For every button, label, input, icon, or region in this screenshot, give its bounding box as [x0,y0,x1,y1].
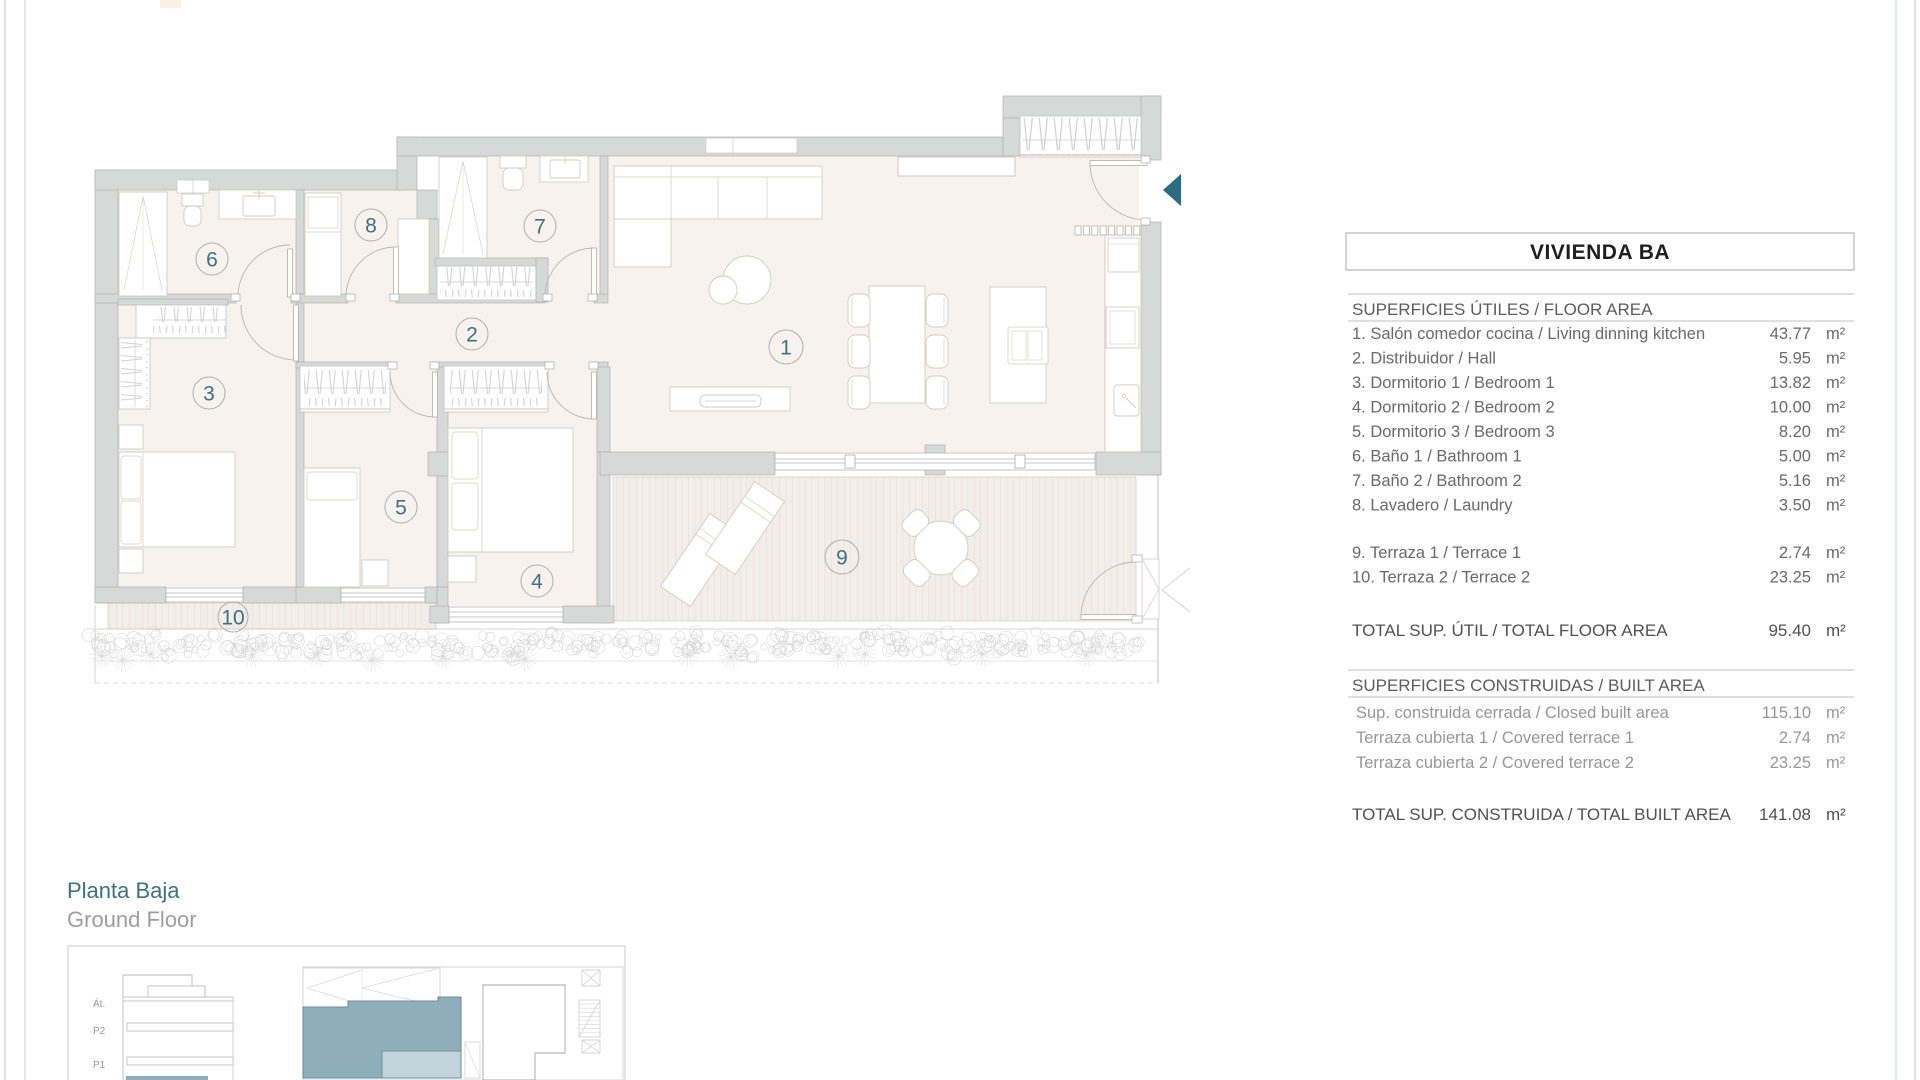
svg-text:P1: P1 [93,1060,106,1071]
svg-text:Terraza cubierta 2 / Covered t: Terraza cubierta 2 / Covered terrace 2 [1356,754,1634,772]
svg-text:m²: m² [1826,754,1846,772]
svg-text:13.82: 13.82 [1770,374,1811,392]
svg-text:m²: m² [1826,399,1846,417]
svg-text:4: 4 [531,571,543,594]
svg-text:Terraza cubierta 1 / Covered t: Terraza cubierta 1 / Covered terrace 1 [1356,729,1634,747]
svg-text:TOTAL SUP. CONSTRUIDA / TOTAL: TOTAL SUP. CONSTRUIDA / TOTAL BUILT AREA [1352,805,1731,824]
svg-text:115.10: 115.10 [1762,704,1811,722]
svg-text:m²: m² [1826,497,1846,515]
svg-text:m²: m² [1826,374,1846,392]
svg-text:10.00: 10.00 [1770,399,1811,417]
svg-text:8. Lavadero / Laundry: 8. Lavadero / Laundry [1352,497,1513,515]
svg-text:m²: m² [1826,472,1846,490]
svg-text:Sup. construida cerrada / Clos: Sup. construida cerrada / Closed built a… [1356,704,1670,722]
svg-text:8: 8 [365,215,377,238]
svg-text:7: 7 [534,216,546,239]
svg-text:m²: m² [1826,621,1846,640]
svg-text:m²: m² [1826,448,1846,466]
svg-text:1: 1 [780,337,792,360]
svg-text:9: 9 [836,547,848,570]
svg-text:m²: m² [1826,704,1846,722]
svg-text:m²: m² [1826,805,1846,824]
svg-text:6. Baño 1 / Bathroom 1: 6. Baño 1 / Bathroom 1 [1352,448,1522,466]
svg-text:23.25: 23.25 [1770,569,1811,587]
svg-text:2.74: 2.74 [1779,544,1811,562]
svg-text:5.16: 5.16 [1779,472,1811,490]
svg-text:5: 5 [395,497,407,520]
svg-text:3: 3 [203,383,215,406]
svg-text:7. Baño 2 / Bathroom 2: 7. Baño 2 / Bathroom 2 [1352,472,1522,490]
svg-text:m²: m² [1826,350,1846,368]
svg-text:m²: m² [1826,325,1846,343]
svg-text:1. Salón comedor cocina / Livi: 1. Salón comedor cocina / Living dinning… [1352,325,1705,343]
svg-text:23.25: 23.25 [1770,754,1811,772]
svg-text:8.20: 8.20 [1779,423,1811,441]
svg-text:Planta Baja: Planta Baja [67,878,180,903]
svg-text:m²: m² [1826,544,1846,562]
svg-text:3. Dormitorio 1 / Bedroom 1: 3. Dormitorio 1 / Bedroom 1 [1352,374,1555,392]
svg-text:2: 2 [466,324,478,347]
svg-text:5. Dormitorio 3 / Bedroom 3: 5. Dormitorio 3 / Bedroom 3 [1352,423,1555,441]
svg-text:SUPERFICIES CONSTRUIDAS / BUIL: SUPERFICIES CONSTRUIDAS / BUILT AREA [1352,676,1705,695]
svg-text:10. Terraza 2 / Terrace 2: 10. Terraza 2 / Terrace 2 [1352,569,1530,587]
svg-text:43.77: 43.77 [1770,325,1811,343]
svg-text:Ground Floor: Ground Floor [67,907,197,932]
svg-text:4. Dormitorio 2 / Bedroom 2: 4. Dormitorio 2 / Bedroom 2 [1352,399,1555,417]
svg-text:141.08: 141.08 [1759,805,1811,824]
svg-text:m²: m² [1826,569,1846,587]
svg-text:2. Distribuidor / Hall: 2. Distribuidor / Hall [1352,350,1496,368]
svg-text:SUPERFICIES ÚTILES / FLOOR ARE: SUPERFICIES ÚTILES / FLOOR AREA [1352,300,1653,319]
svg-text:m²: m² [1826,729,1846,747]
svg-text:2.74: 2.74 [1779,729,1811,747]
svg-text:10: 10 [221,607,244,630]
svg-text:Át.: Át. [93,997,105,1010]
svg-text:95.40: 95.40 [1768,621,1811,640]
svg-text:3.50: 3.50 [1779,497,1811,515]
svg-text:6: 6 [206,249,218,272]
svg-text:VIVIENDA BA: VIVIENDA BA [1530,241,1670,264]
svg-text:9. Terraza 1 / Terrace 1: 9. Terraza 1 / Terrace 1 [1352,544,1521,562]
svg-text:m²: m² [1826,423,1846,441]
svg-text:P2: P2 [93,1026,106,1037]
svg-text:5.95: 5.95 [1779,350,1811,368]
svg-text:5.00: 5.00 [1779,448,1811,466]
svg-text:TOTAL SUP. ÚTIL / TOTAL FLOOR: TOTAL SUP. ÚTIL / TOTAL FLOOR AREA [1352,621,1668,640]
